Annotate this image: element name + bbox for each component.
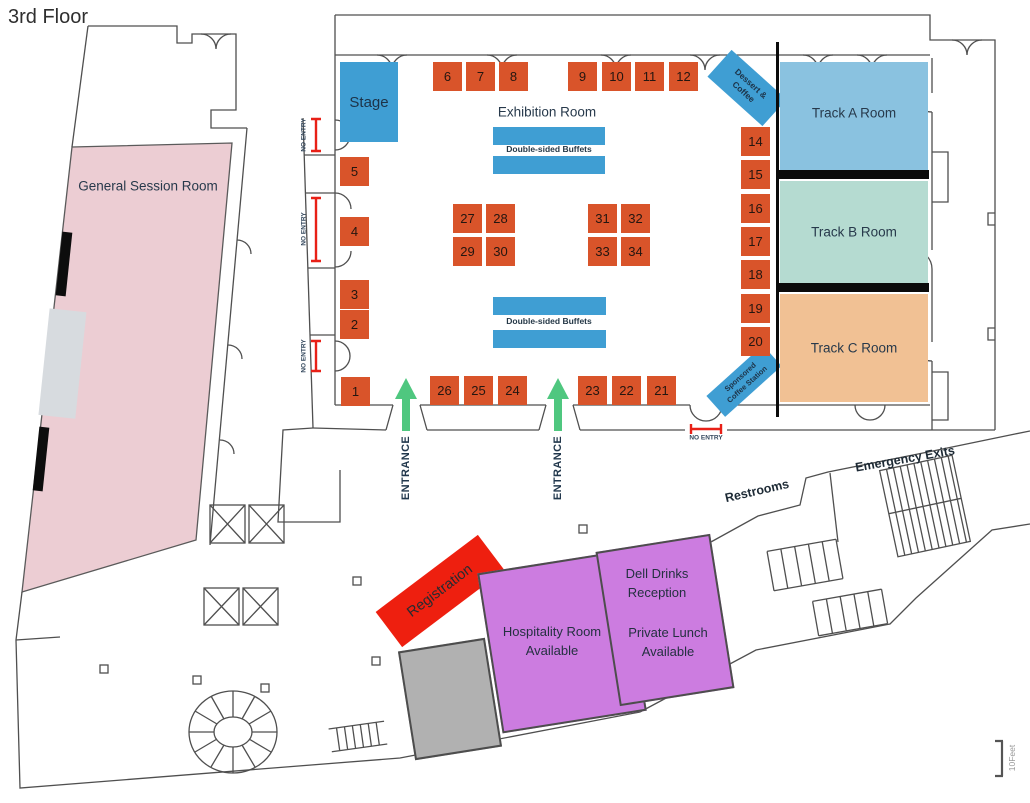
general-session-room-label: General Session Room — [78, 179, 218, 194]
track-c-label: Track C Room — [811, 341, 898, 356]
scale-label: 10Feet — [1007, 745, 1017, 771]
buffet-label-bottom: Double-sided Buffets — [506, 316, 591, 326]
gray-room — [398, 638, 502, 760]
booth-2: 2 — [340, 310, 369, 339]
booth-21: 21 — [647, 376, 676, 405]
hospitality-room-label: Hospitality Room Available — [503, 623, 601, 661]
booth-1: 1 — [341, 377, 370, 406]
booth-20: 20 — [741, 327, 770, 356]
booth-23: 23 — [578, 376, 607, 405]
booth-29: 29 — [453, 237, 482, 266]
booth-8: 8 — [499, 62, 528, 91]
booth-34: 34 — [621, 237, 650, 266]
no-entry-label-2: NO ENTRY — [301, 212, 308, 245]
exhibition-room-label: Exhibition Room — [498, 105, 596, 120]
booth-4: 4 — [340, 217, 369, 246]
buffet-table — [493, 127, 605, 145]
booth-33: 33 — [588, 237, 617, 266]
booth-25: 25 — [464, 376, 493, 405]
scale-bracket — [995, 741, 1003, 776]
buffet-table — [493, 330, 606, 348]
buffet-label-top: Double-sided Buffets — [506, 144, 591, 154]
no-entry-label-3: NO ENTRY — [301, 339, 308, 372]
booth-11: 11 — [635, 62, 664, 91]
booth-6: 6 — [433, 62, 462, 91]
stage: Stage — [340, 62, 398, 142]
private-lunch-label: Private Lunch Available — [628, 624, 708, 662]
booth-19: 19 — [741, 294, 770, 323]
booth-17: 17 — [741, 227, 770, 256]
entrance-label-right: ENTRANCE — [552, 436, 564, 500]
booth-9: 9 — [568, 62, 597, 91]
no-entry-label-bottom: NO ENTRY — [689, 435, 722, 442]
track-ab-partition — [779, 170, 929, 179]
booth-22: 22 — [612, 376, 641, 405]
booth-7: 7 — [466, 62, 495, 91]
floor-title: 3rd Floor — [8, 6, 88, 29]
booth-16: 16 — [741, 194, 770, 223]
booth-12: 12 — [669, 62, 698, 91]
booth-3: 3 — [340, 280, 369, 309]
booth-24: 24 — [498, 376, 527, 405]
no-entry-label-1: NO ENTRY — [301, 118, 308, 151]
booth-27: 27 — [453, 204, 482, 233]
track-b-label: Track B Room — [811, 225, 897, 240]
buffet-table — [493, 156, 605, 174]
booth-5: 5 — [340, 157, 369, 186]
booth-32: 32 — [621, 204, 650, 233]
booth-18: 18 — [741, 260, 770, 289]
entrance-label-left: ENTRANCE — [400, 436, 412, 500]
booth-30: 30 — [486, 237, 515, 266]
booth-28: 28 — [486, 204, 515, 233]
booth-10: 10 — [602, 62, 631, 91]
floor-plan: 3rd Floor General Session Room Stage Exh… — [0, 0, 1030, 803]
dell-reception-label: Dell Drinks Reception — [626, 565, 689, 603]
track-a-label: Track A Room — [812, 106, 896, 121]
booth-26: 26 — [430, 376, 459, 405]
dell-reception-room — [596, 534, 735, 706]
buffet-table — [493, 297, 606, 315]
booth-15: 15 — [741, 160, 770, 189]
booth-31: 31 — [588, 204, 617, 233]
track-divider-wall — [776, 42, 779, 417]
track-bc-partition — [779, 283, 929, 292]
booth-14: 14 — [741, 127, 770, 156]
